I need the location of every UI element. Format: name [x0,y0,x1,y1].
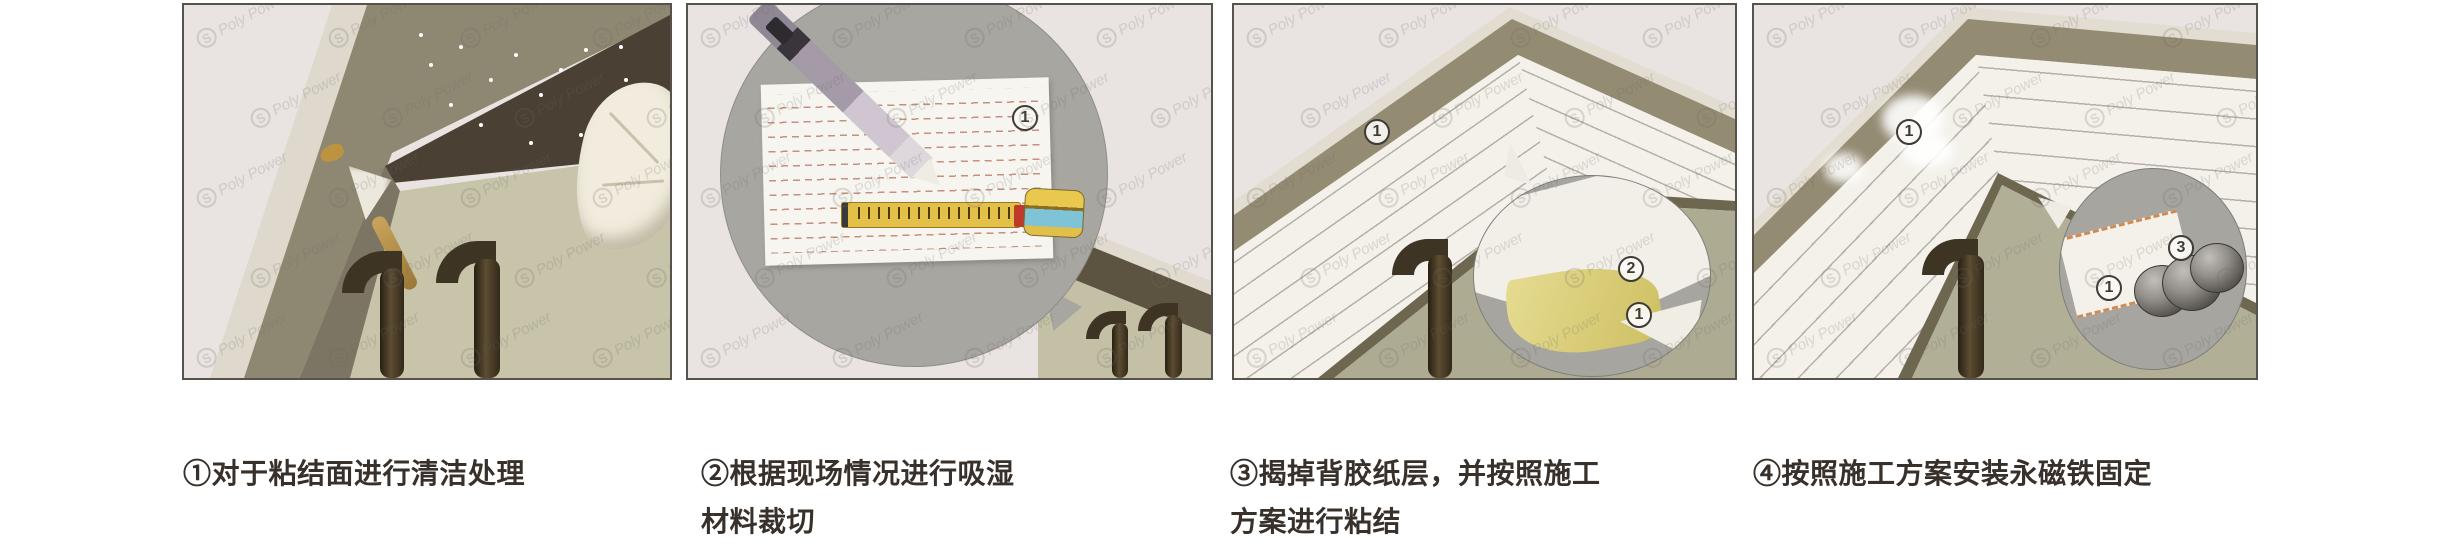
brand-watermark: SPoly Power [1147,67,1211,132]
brand-watermark: SPoly Power [193,5,291,51]
brand-watermark: SPoly Power [1639,5,1735,51]
peel-callout-bubble: 2 1 [1473,175,1711,377]
step2-photo: 1 SPoly PowerSPoly PowerSPoly PowerSPoly… [686,3,1213,380]
brand-watermark: SPoly Power [1093,5,1191,51]
pipe [1428,255,1452,378]
caption-line: 方案进行粘结 [1230,498,1601,546]
tape-measure-ruler [841,202,1021,228]
step2-caption: ②根据现场情况进行吸湿 材料裁切 [701,450,1015,546]
step3-caption: ③揭掉背胶纸层，并按照施工 方案进行粘结 [1230,450,1601,546]
pipe [1112,323,1128,378]
caption-line: ②根据现场情况进行吸湿 [701,450,1015,498]
caption-line: ③揭掉背胶纸层，并按照施工 [1230,450,1601,498]
label-circle-1: 1 [1012,105,1038,131]
label-circle-3: 3 [2168,235,2194,261]
ruler-end-cap [842,203,848,227]
pipe [1958,255,1984,378]
magnet-callout-bubble: 3 1 [2059,168,2247,370]
glare-spot [1824,153,1864,183]
tape-measure-case [1023,187,1085,238]
magnet-disc [2190,243,2244,293]
pipe [474,259,500,378]
ruler-ticks [850,207,1016,219]
cloth-fold [602,179,664,186]
pipe [380,269,404,378]
pipe [1165,315,1182,378]
instruction-figure: SPoly PowerSPoly PowerSPoly PowerSPoly P… [0,0,2441,560]
step4-photo: 1 3 1 SPoly PowerSPoly PowerSPoly PowerS… [1752,3,2258,380]
step4-caption: ④按照施工方案安装永磁铁固定 [1753,450,2152,498]
step1-caption: ①对于粘结面进行清洁处理 [183,450,525,498]
brand-watermark: SPoly Power [1763,5,1861,51]
step1-photo: SPoly PowerSPoly PowerSPoly PowerSPoly P… [182,3,672,380]
brand-watermark: SPoly Power [1243,5,1341,51]
caption-line: ④按照施工方案安装永磁铁固定 [1753,450,2152,498]
caption-line: ①对于粘结面进行清洁处理 [183,450,525,498]
brand-watermark: SPoly Power [697,307,795,372]
label-circle-1: 1 [1896,119,1922,145]
label-circle-1: 1 [1364,119,1390,145]
label-circle-1: 1 [1626,302,1652,328]
dust-specks [419,33,423,37]
step3-photo: 1 2 1 SPoly PowerSPoly PowerSPoly PowerS… [1232,3,1737,380]
cloth-fold [609,112,660,164]
caption-line: 材料裁切 [701,498,1015,546]
label-circle-2: 2 [1618,256,1644,282]
label-circle-1: 1 [2096,275,2122,301]
